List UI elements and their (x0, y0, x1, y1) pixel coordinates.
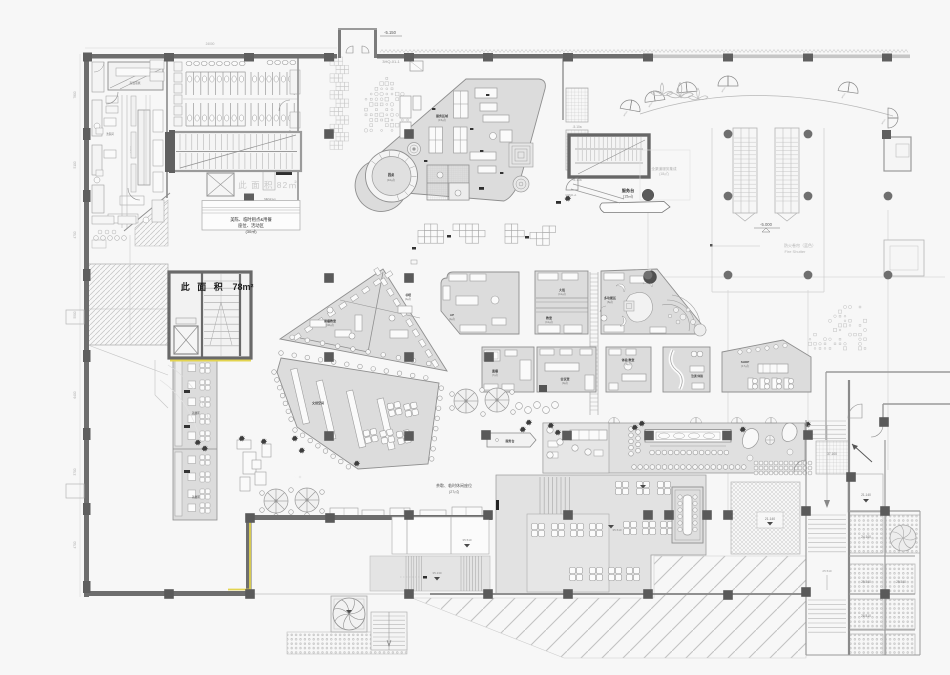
svg-text:4700: 4700 (73, 231, 77, 238)
svg-text:(30㎡): (30㎡) (245, 228, 257, 234)
svg-text:3700: 3700 (73, 468, 77, 475)
svg-text:(11㎡): (11㎡) (558, 292, 566, 296)
svg-text:(40㎡): (40㎡) (326, 323, 334, 327)
svg-text:就餐区: 就餐区 (192, 495, 200, 499)
svg-text:(15㎡): (15㎡) (438, 118, 446, 122)
svg-text:78m²: 78m² (232, 282, 253, 292)
svg-text:(11㎡): (11㎡) (545, 320, 553, 324)
svg-text:5100: 5100 (73, 161, 77, 168)
svg-text:-5.10a: -5.10a (572, 125, 581, 129)
svg-text:(4㎡): (4㎡) (405, 297, 411, 301)
svg-text:圆桌: 圆桌 (388, 172, 395, 177)
svg-text:洗碗间: 洗碗间 (106, 132, 114, 136)
svg-text:-5.150: -5.150 (384, 30, 397, 35)
svg-text:37.100: 37.100 (827, 452, 837, 456)
svg-text:美陈、临时租点&用餐: 美陈、临时租点&用餐 (230, 216, 272, 223)
svg-text:座位、活动区: 座位、活动区 (238, 222, 264, 229)
svg-text:25.510: 25.510 (861, 580, 871, 584)
svg-text:3HQ-01-1: 3HQ-01-1 (382, 59, 400, 64)
svg-text:21.140: 21.140 (765, 517, 775, 521)
svg-text:茶歇、临时休闲座位: 茶歇、临时休闲座位 (436, 482, 472, 488)
svg-text:此 面 积 82㎡: 此 面 积 82㎡ (238, 180, 298, 190)
svg-text:(9㎡): (9㎡) (625, 362, 631, 366)
svg-text:洽谈 体验: 洽谈 体验 (690, 374, 703, 378)
svg-text:服务台: 服务台 (622, 187, 635, 194)
svg-text:4700: 4700 (73, 541, 77, 548)
svg-text:21.140: 21.140 (861, 493, 871, 497)
svg-text:高温蒸煮: 高温蒸煮 (129, 81, 140, 85)
svg-text:7800: 7800 (73, 91, 77, 98)
svg-text:-5.000: -5.000 (760, 222, 773, 227)
svg-text:28.510: 28.510 (861, 614, 871, 618)
svg-text:35.130: 35.130 (432, 571, 442, 575)
svg-text:(27㎡): (27㎡) (449, 489, 459, 494)
svg-text:(4㎡): (4㎡) (449, 317, 455, 321)
svg-text:此 面 积: 此 面 积 (181, 281, 226, 292)
svg-text:(17㎡): (17㎡) (741, 364, 749, 368)
svg-text:5500: 5500 (73, 311, 77, 318)
svg-text:24.100: 24.100 (861, 535, 871, 539)
svg-text:(9㎡): (9㎡) (562, 381, 568, 385)
svg-text:防火卷帘（蓝色）: 防火卷帘（蓝色） (784, 242, 816, 248)
svg-text:25.510: 25.510 (896, 580, 906, 584)
svg-text:(18㎡): (18㎡) (659, 171, 668, 176)
svg-text:就餐区: 就餐区 (192, 411, 200, 415)
svg-text:(15㎡): (15㎡) (623, 194, 633, 199)
svg-text:(10㎡): (10㎡) (387, 177, 395, 182)
svg-text:(8㎡): (8㎡) (607, 300, 613, 304)
svg-text:35.510: 35.510 (612, 528, 622, 532)
svg-text:(7㎡): (7㎡) (492, 373, 498, 377)
svg-text:服务台: 服务台 (505, 438, 514, 443)
svg-text:6400: 6400 (73, 391, 77, 398)
svg-text:Fire Shutter: Fire Shutter (785, 249, 807, 254)
svg-text:24000: 24000 (206, 42, 215, 46)
svg-text:35.510: 35.510 (462, 538, 472, 542)
svg-text:全渠道服务集成: 全渠道服务集成 (651, 166, 677, 171)
svg-text:25.510: 25.510 (822, 569, 832, 573)
svg-text:文创空间: 文创空间 (311, 400, 324, 405)
